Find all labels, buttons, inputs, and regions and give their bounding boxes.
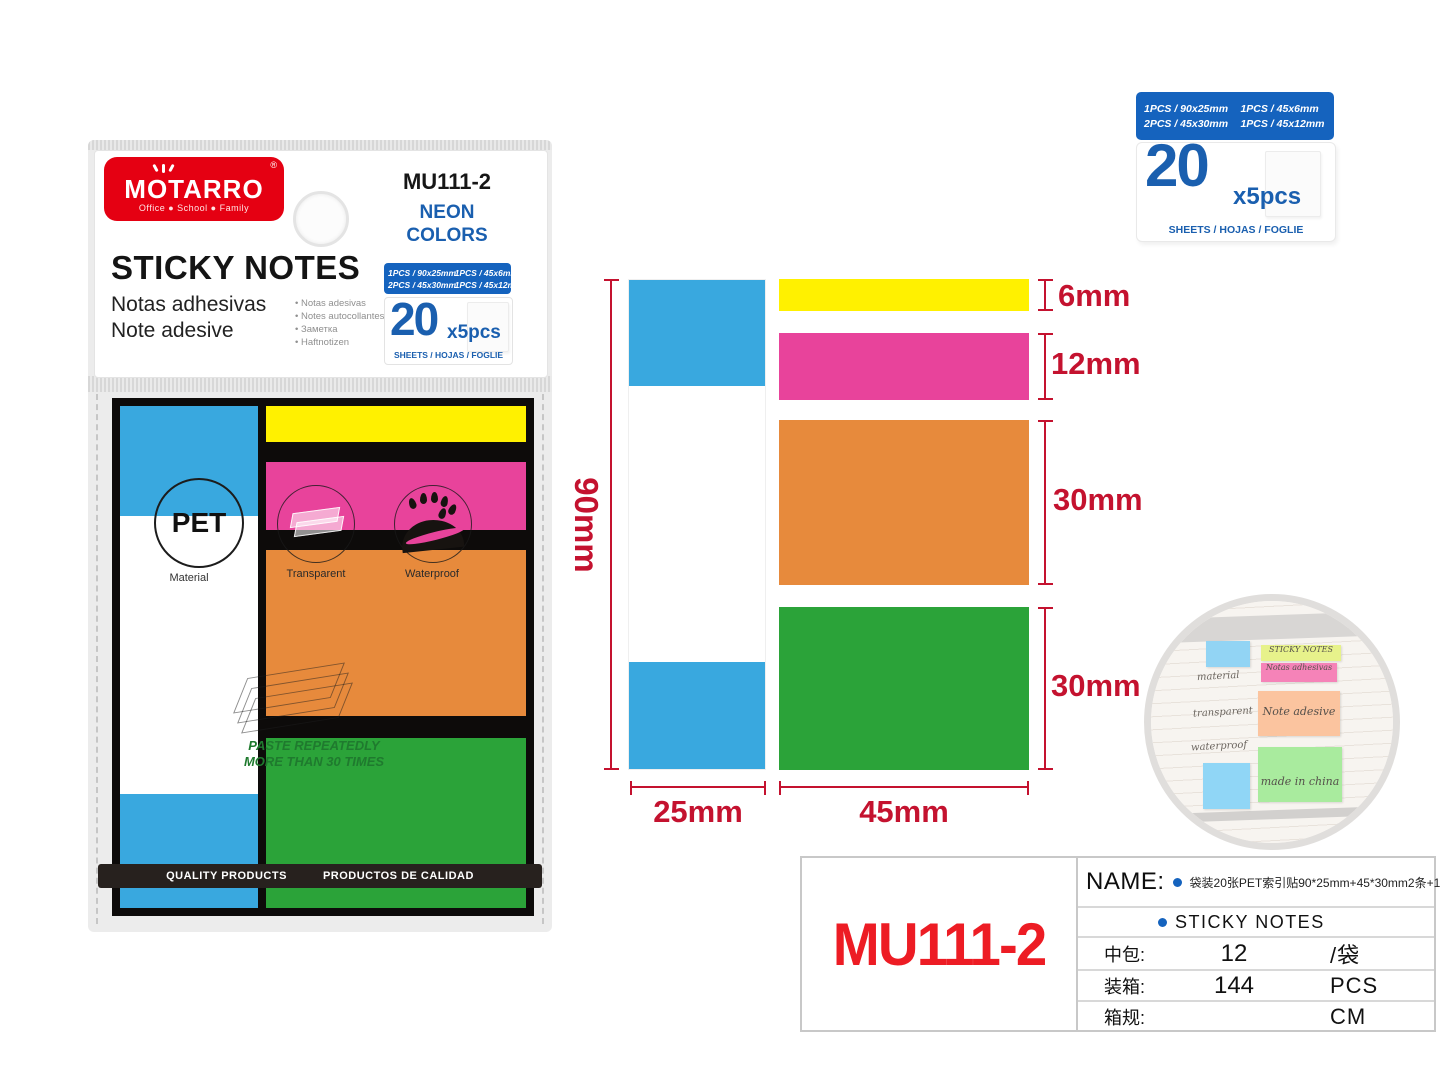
language-item: • Notes autocollantes: [295, 310, 384, 323]
spec-item: 1PCS / 45x12mm: [455, 280, 507, 290]
row-label: 装箱:: [1078, 973, 1174, 999]
diagram-strip-12mm: [779, 333, 1029, 400]
blue-tab-bottom: [120, 794, 258, 908]
diagram-blue-top: [629, 280, 765, 386]
product-name-cn: 袋装20张PET索引贴90*25mm+45*30mm2条+12*45mm+6*4…: [1190, 874, 1440, 891]
photo-blue-tab: [1206, 641, 1250, 667]
diagram-strip-6mm: [779, 279, 1029, 311]
sticky-stack-icon: [240, 666, 344, 738]
row-label: 箱规:: [1078, 1004, 1174, 1030]
model-cell: MU111-2: [802, 858, 1076, 1030]
brand-name: MOTARRO: [104, 174, 284, 205]
model-number-large: MU111-2: [833, 910, 1046, 979]
table-row-carton-size: 箱规: CM: [1078, 1002, 1434, 1032]
sheet-count: 20: [1145, 131, 1208, 200]
table-row-name: NAME: 袋装20张PET索引贴90*25mm+45*30mm2条+12*45…: [1078, 858, 1434, 908]
spec-table: NAME: 袋装20张PET索引贴90*25mm+45*30mm2条+12*45…: [1076, 858, 1434, 1030]
diagram-note-30mm-b: [779, 607, 1029, 770]
diagram-index-column: [628, 279, 766, 770]
dimension-line-90mm: [610, 279, 612, 770]
photo-blue-tab: [1203, 763, 1250, 809]
product-title: STICKY NOTES: [111, 249, 360, 287]
package-pouch: MOTARRO ® Office ● School ● Family MU111…: [88, 140, 552, 932]
pouch-mid-seal: [88, 376, 552, 392]
waterproof-icon: [394, 485, 472, 563]
table-row-name-en: STICKY NOTES: [1078, 908, 1434, 938]
dimension-label-25mm: 25mm: [632, 794, 764, 830]
sheet-units: SHEETS / HOJAS / FOGLIE: [1137, 224, 1335, 236]
photo-pink-strip: Notas adhesivas: [1261, 663, 1337, 682]
table-row-carton: 装箱: 144 PCS: [1078, 971, 1434, 1002]
sheet-count: 20: [390, 292, 437, 346]
product-subtitle-es: Notas adhesivas: [111, 293, 266, 317]
header-card: MOTARRO ® Office ● School ● Family MU111…: [94, 150, 548, 378]
photo-yellow-strip: STICKY NOTES: [1261, 645, 1341, 661]
package-window: PET Material: [112, 398, 534, 916]
quality-text-es: PRODUCTOS DE CALIDAD: [323, 870, 474, 882]
product-subtitle-it: Note adesive: [111, 319, 234, 343]
pouch-left-seam: [96, 394, 98, 924]
material-label: Material: [120, 572, 258, 584]
dimension-label-12mm: 12mm: [1051, 346, 1141, 382]
registered-mark: ®: [270, 160, 277, 170]
transparent-icon: [277, 485, 355, 563]
row-label: 中包:: [1078, 941, 1174, 967]
spec-item: 1PCS / 90x25mm: [388, 268, 455, 278]
spec-item: 1PCS / 45x6mm: [455, 268, 507, 278]
handwritten-word: material: [1197, 670, 1240, 683]
brand-logo: MOTARRO ® Office ● School ● Family: [104, 157, 284, 221]
usage-photo: STICKY NOTES Notas adhesivas Note adesiv…: [1144, 594, 1400, 850]
spec-item: 2PCS / 45x30mm: [1144, 118, 1240, 130]
product-name-en: STICKY NOTES: [1175, 912, 1325, 933]
yellow-strip: [266, 406, 526, 442]
row-unit: CM: [1294, 1004, 1434, 1030]
pouch-right-seam: [542, 394, 544, 924]
language-item: • Notas adesivas: [295, 297, 384, 310]
size-spec-badge: 1PCS / 90x25mm 1PCS / 45x6mm 2PCS / 45x3…: [384, 263, 511, 294]
spec-item: 2PCS / 45x30mm: [388, 280, 455, 290]
photo-peach-note: Note adesive: [1258, 691, 1340, 736]
row-unit: PCS: [1294, 973, 1434, 999]
spec-item: 1PCS / 45x12mm: [1240, 118, 1326, 130]
dimension-label-90mm: 90mm: [567, 463, 605, 587]
dimension-label-30mm-a: 30mm: [1053, 482, 1143, 518]
row-unit: /袋: [1294, 938, 1434, 970]
quality-bar: QUALITY PRODUCTS PRODUCTOS DE CALIDAD: [98, 864, 542, 888]
dimension-label-45mm: 45mm: [838, 794, 970, 830]
waterproof-label: Waterproof: [380, 568, 484, 580]
sheet-count-card: 20 x5pcs SHEETS / HOJAS / FOGLIE: [1136, 142, 1336, 242]
language-list: • Notas adesivas • Notes autocollantes •…: [295, 297, 384, 349]
language-item: • Haftnotizen: [295, 336, 384, 349]
product-sheet: MOTARRO ® Office ● School ● Family MU111…: [0, 0, 1440, 1080]
dimension-line-6mm: [1044, 279, 1046, 311]
dimension-label-30mm-b: 30mm: [1051, 668, 1141, 704]
dimension-line-25mm: [630, 786, 766, 788]
pad-multiplier: x5pcs: [447, 322, 501, 344]
pet-label: PET: [172, 507, 226, 539]
dimension-line-30mm-b: [1044, 607, 1046, 770]
pet-material-icon: PET: [154, 478, 244, 568]
bullet-icon: [1173, 878, 1182, 887]
spec-item: 1PCS / 90x25mm: [1144, 103, 1240, 115]
name-label: NAME:: [1086, 868, 1165, 896]
dimension-line-30mm-a: [1044, 420, 1046, 585]
brand-tagline: Office ● School ● Family: [104, 203, 284, 213]
row-value: 12: [1174, 940, 1294, 968]
language-item: • Заметка: [295, 323, 384, 336]
sheet-count-box: 20 x5pcs SHEETS / HOJAS / FOGLIE: [384, 297, 513, 365]
diagram-blue-bottom: [629, 662, 765, 769]
table-row-inner-pack: 中包: 12 /袋: [1078, 938, 1434, 971]
transparent-label: Transparent: [264, 568, 368, 580]
quality-text-en: QUALITY PRODUCTS: [166, 870, 287, 882]
paste-repeatedly-note: PASTE REPEATEDLY MORE THAN 30 TIMES: [204, 738, 424, 770]
dimension-line-45mm: [779, 786, 1029, 788]
model-number: MU111-2: [367, 169, 527, 195]
dimension-line-12mm: [1044, 333, 1046, 400]
spec-item: 1PCS / 45x6mm: [1240, 103, 1326, 115]
pad-multiplier: x5pcs: [1233, 183, 1301, 211]
bullet-icon: [1158, 918, 1167, 927]
logo-rays-icon: [152, 164, 176, 174]
finish-label: NEON COLORS: [367, 201, 527, 247]
dimension-label-6mm: 6mm: [1058, 278, 1130, 314]
index-tab-column: PET Material: [120, 406, 258, 908]
diagram-note-30mm-a: [779, 420, 1029, 585]
pouch-top-seal: [88, 140, 552, 150]
sheet-units: SHEETS / HOJAS / FOGLIE: [385, 350, 512, 360]
row-value: 144: [1174, 972, 1294, 1000]
photo-green-note: made in china: [1258, 747, 1342, 802]
hang-hole: [293, 191, 349, 247]
note-strips-column: Transparent Waterproof: [266, 406, 526, 908]
spec-info-box: MU111-2 NAME: 袋装20张PET索引贴90*25mm+45*30mm…: [800, 856, 1436, 1032]
